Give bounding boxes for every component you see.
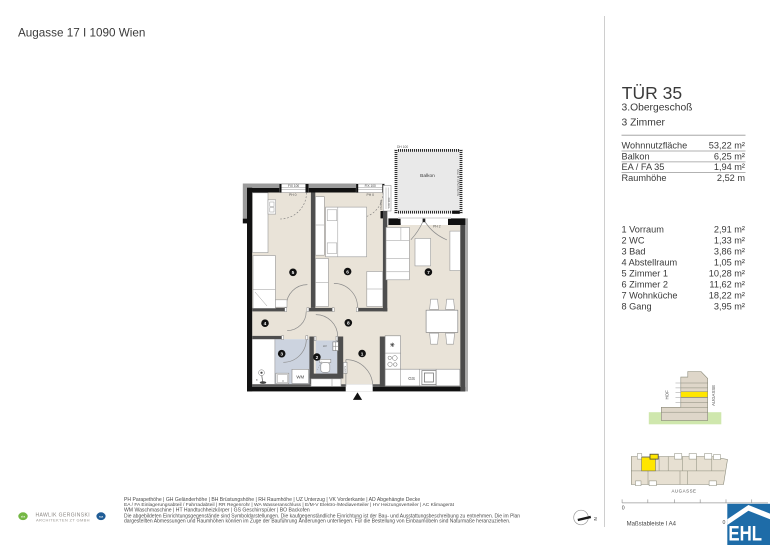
svg-text:EA / FA 35: EA / FA 35 bbox=[622, 162, 665, 172]
svg-text:TÜR 35: TÜR 35 bbox=[622, 83, 682, 103]
svg-text:3,86 m²: 3,86 m² bbox=[714, 246, 745, 256]
svg-text:2: 2 bbox=[316, 355, 319, 361]
svg-text:AUGASSE: AUGASSE bbox=[711, 385, 716, 406]
svg-text:6,25 m²: 6,25 m² bbox=[714, 151, 745, 161]
svg-text:PH 0: PH 0 bbox=[289, 193, 297, 197]
svg-text:N: N bbox=[593, 517, 598, 520]
svg-text:EHL: EHL bbox=[728, 522, 762, 545]
svg-text:AUGASSE: AUGASSE bbox=[671, 489, 696, 494]
svg-text:1: 1 bbox=[361, 351, 364, 357]
svg-text:WM: WM bbox=[296, 374, 304, 379]
svg-text:Balkon: Balkon bbox=[420, 173, 435, 179]
svg-text:dargestellten Abmessungen und: dargestellten Abmessungen und Raumhöhen … bbox=[124, 518, 510, 525]
svg-text:HOF: HOF bbox=[664, 390, 669, 400]
svg-text:10,28 m²: 10,28 m² bbox=[709, 268, 745, 278]
svg-text:1,33 m²: 1,33 m² bbox=[714, 235, 745, 245]
svg-text:6 Zimmer 2: 6 Zimmer 2 bbox=[622, 279, 668, 289]
svg-text:GS: GS bbox=[408, 376, 415, 381]
svg-text:2 WC: 2 WC bbox=[622, 235, 645, 245]
svg-text:4 Abstellraum: 4 Abstellraum bbox=[622, 257, 678, 267]
svg-text:PH 0: PH 0 bbox=[367, 193, 375, 197]
svg-text:Balkon: Balkon bbox=[622, 151, 650, 161]
svg-text:3 Zimmer: 3 Zimmer bbox=[622, 117, 666, 128]
svg-text:Wohnnutzfläche: Wohnnutzfläche bbox=[622, 140, 688, 150]
svg-text:PH3/F/L: PH3/F/L bbox=[379, 199, 383, 210]
svg-text:3,95 m²: 3,95 m² bbox=[714, 301, 745, 311]
svg-text:3: 3 bbox=[280, 352, 283, 358]
svg-text:FIX 100: FIX 100 bbox=[288, 184, 299, 188]
svg-text:4: 4 bbox=[264, 321, 267, 327]
svg-text:E/M-V: E/M-V bbox=[344, 366, 347, 373]
svg-text:7: 7 bbox=[427, 270, 430, 276]
svg-text:3 Bad: 3 Bad bbox=[622, 246, 646, 256]
svg-text:3.Obergeschoß: 3.Obergeschoß bbox=[622, 103, 693, 114]
svg-text:Raumhöhe: Raumhöhe bbox=[622, 173, 667, 183]
svg-text:HV: HV bbox=[323, 344, 327, 348]
svg-text:Sichtschutz H 230: Sichtschutz H 230 bbox=[456, 169, 460, 196]
svg-text:8 Gang: 8 Gang bbox=[622, 301, 652, 311]
svg-text:18,22 m²: 18,22 m² bbox=[709, 290, 745, 300]
svg-text:ARCHITEKTEN ZT GMBH: ARCHITEKTEN ZT GMBH bbox=[36, 518, 90, 523]
svg-text:2,52 m: 2,52 m bbox=[717, 173, 745, 183]
svg-text:PH Parapethöhe | GH Geländerhö: PH Parapethöhe | GH Geländerhöhe | BH Br… bbox=[124, 497, 420, 503]
svg-text:FIX 100: FIX 100 bbox=[387, 197, 391, 207]
svg-text:5 Zimmer 1: 5 Zimmer 1 bbox=[622, 268, 668, 278]
svg-text:1,94 m²: 1,94 m² bbox=[714, 162, 745, 172]
svg-text:1 Vorraum: 1 Vorraum bbox=[622, 224, 665, 234]
svg-text:0: 0 bbox=[723, 520, 726, 526]
svg-text:Maßstableiste I A4: Maßstableiste I A4 bbox=[627, 521, 677, 527]
svg-text:6: 6 bbox=[346, 269, 349, 275]
svg-text:FIX 100: FIX 100 bbox=[365, 184, 376, 188]
svg-text:11,62 m²: 11,62 m² bbox=[709, 279, 745, 289]
svg-text:0: 0 bbox=[622, 506, 625, 512]
svg-text:PH 2: PH 2 bbox=[433, 225, 441, 229]
svg-text:ega: ega bbox=[99, 515, 104, 518]
svg-text:5: 5 bbox=[292, 270, 295, 276]
svg-text:53,22 m²: 53,22 m² bbox=[709, 140, 745, 150]
svg-text:2,91 m²: 2,91 m² bbox=[714, 224, 745, 234]
svg-text:7 Wohnküche: 7 Wohnküche bbox=[622, 290, 678, 300]
svg-text:8: 8 bbox=[347, 321, 350, 327]
svg-text:DH 100: DH 100 bbox=[397, 145, 408, 149]
svg-text:1,05 m²: 1,05 m² bbox=[714, 257, 745, 267]
svg-text:Augasse 17 I 1090 Wien: Augasse 17 I 1090 Wien bbox=[18, 27, 145, 40]
svg-text:aha: aha bbox=[21, 514, 26, 518]
